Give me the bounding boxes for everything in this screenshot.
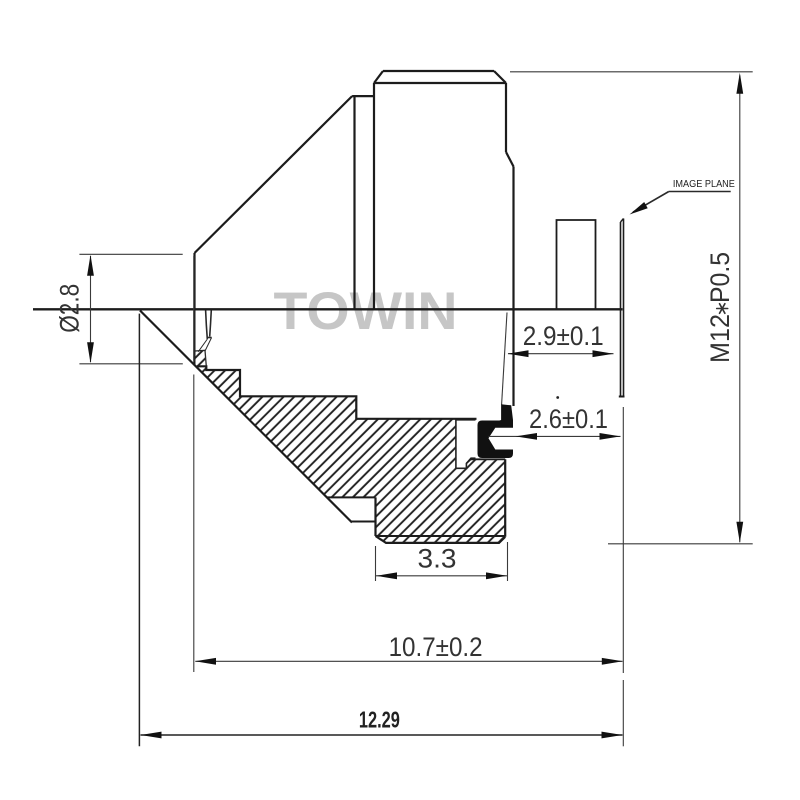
svg-text:P0.5: P0.5	[705, 252, 735, 303]
svg-text:12.29: 12.29	[359, 707, 400, 733]
svg-text:2.6±0.1: 2.6±0.1	[529, 404, 608, 434]
svg-text:TOWIN: TOWIN	[274, 282, 458, 341]
svg-text:IMAGE PLANE: IMAGE PLANE	[673, 178, 735, 190]
svg-text:10.7±0.2: 10.7±0.2	[389, 632, 483, 662]
svg-text:M12: M12	[705, 314, 735, 363]
svg-text:3.3: 3.3	[418, 544, 457, 574]
svg-text:Ø2.8: Ø2.8	[55, 284, 85, 333]
svg-text:2.9±0.1: 2.9±0.1	[523, 321, 604, 351]
